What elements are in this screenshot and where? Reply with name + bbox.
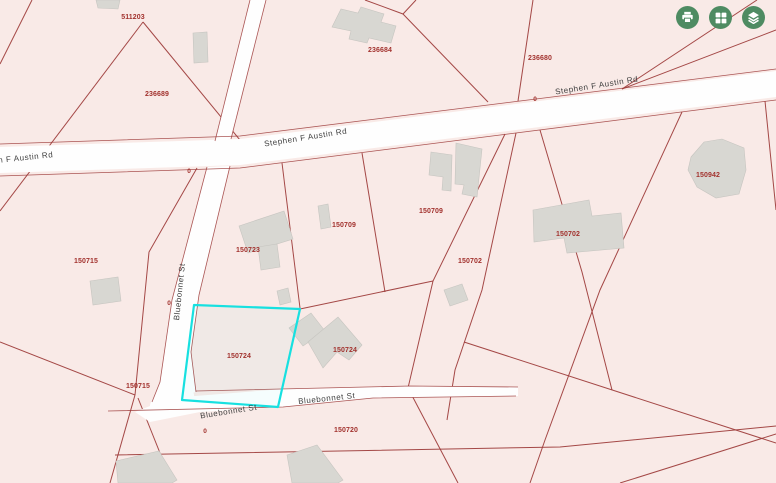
parcel-number-label: 150715 <box>126 383 150 390</box>
zero-marker: 0 <box>167 300 171 307</box>
print-button[interactable] <box>676 6 699 29</box>
parcel-number-label: 236684 <box>368 47 392 54</box>
building-footprint <box>96 0 120 9</box>
zero-marker: 0 <box>187 168 191 175</box>
parcel-number-label: 236680 <box>528 55 552 62</box>
basemap-grid-button[interactable] <box>709 6 732 29</box>
parcel-number-label: 150702 <box>556 231 580 238</box>
parcel-number-label: 511203 <box>121 14 145 21</box>
building-footprint <box>193 32 208 63</box>
layers-button[interactable] <box>742 6 765 29</box>
printer-icon <box>681 11 694 24</box>
grid-icon <box>715 12 727 24</box>
map-canvas[interactable]: Stephen F Austin RdStephen F Austin Rdn … <box>0 0 776 483</box>
parcel-number-label: 150702 <box>458 258 482 265</box>
layers-icon <box>747 11 760 24</box>
building-footprint <box>90 277 121 305</box>
parcel-number-label: 236689 <box>145 91 169 98</box>
parcel-number-label: 150715 <box>74 258 98 265</box>
map-toolbar <box>676 6 765 29</box>
parcel-number-label: 150709 <box>419 208 443 215</box>
parcel-number-label: 150723 <box>236 247 260 254</box>
building-footprint <box>258 244 280 270</box>
parcel-number-label: 150942 <box>696 172 720 179</box>
parcel-map-viewer: Stephen F Austin RdStephen F Austin Rdn … <box>0 0 776 483</box>
parcel-number-label: 150720 <box>334 427 358 434</box>
parcel-number-label: 150709 <box>332 222 356 229</box>
parcel-number-label: 150724 <box>333 347 357 354</box>
zero-marker: 0 <box>533 96 537 103</box>
parcel-number-label: 150724 <box>227 353 251 360</box>
zero-marker: 0 <box>203 428 207 435</box>
